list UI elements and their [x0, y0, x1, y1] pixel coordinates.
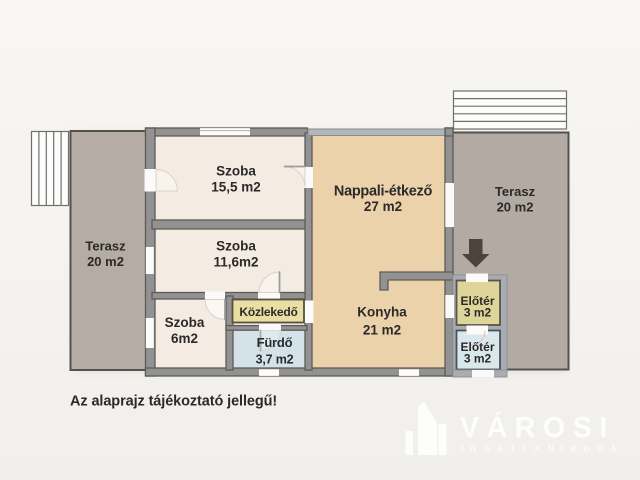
svg-text:Fürdő: Fürdő: [257, 335, 293, 350]
svg-text:Szoba: Szoba: [165, 315, 205, 330]
svg-text:27 m2: 27 m2: [364, 199, 402, 214]
svg-text:20 m2: 20 m2: [497, 199, 534, 214]
svg-text:15,5 m2: 15,5 m2: [211, 180, 261, 195]
svg-text:11,6m2: 11,6m2: [213, 255, 258, 270]
svg-text:INGATLANIRODA: INGATLANIRODA: [461, 445, 624, 454]
svg-text:Terasz: Terasz: [85, 239, 126, 254]
svg-text:21 m2: 21 m2: [363, 323, 401, 338]
svg-text:Nappali-étkező: Nappali-étkező: [334, 184, 433, 200]
svg-text:3 m2: 3 m2: [464, 352, 492, 366]
svg-text:Szoba: Szoba: [216, 163, 256, 178]
svg-text:Terasz: Terasz: [495, 184, 536, 199]
svg-text:3,7 m2: 3,7 m2: [256, 353, 294, 367]
svg-text:6m2: 6m2: [171, 331, 198, 346]
svg-text:Konyha: Konyha: [357, 305, 407, 320]
svg-text:VÁROSI: VÁROSI: [460, 412, 615, 444]
svg-text:Szoba: Szoba: [216, 239, 256, 254]
svg-text:20 m2: 20 m2: [87, 254, 124, 269]
svg-text:Közlekedő: Közlekedő: [239, 305, 297, 319]
svg-text:3 m2: 3 m2: [464, 306, 492, 320]
svg-text:Az alaprajz tájékoztató jelleg: Az alaprajz tájékoztató jellegű!: [70, 394, 277, 410]
